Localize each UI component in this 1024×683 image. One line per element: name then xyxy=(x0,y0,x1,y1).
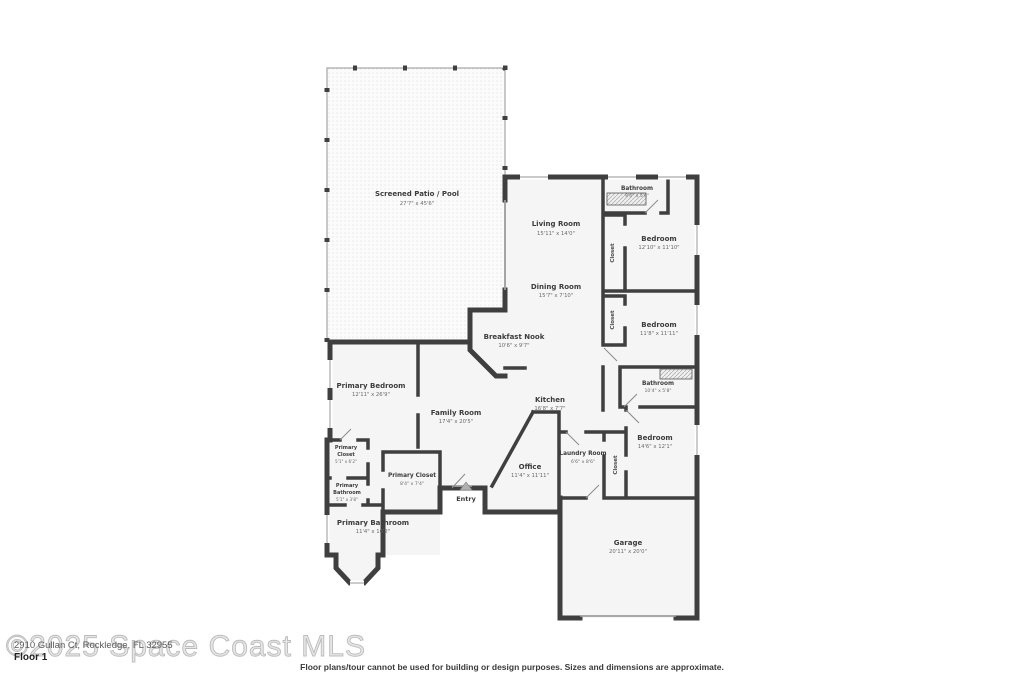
room-label-office: Office xyxy=(519,463,542,471)
room-dims-living-room: 15'11" x 14'0" xyxy=(537,231,575,237)
room-dims-laundry-room: 6'6" x 8'6" xyxy=(571,459,595,465)
room-dims-bedroom-3: 14'6" x 12'1" xyxy=(638,444,673,450)
room-dims-garage: 20'11" x 20'0" xyxy=(609,549,647,555)
closet-label-2: Closet xyxy=(610,310,616,330)
room-label-bedroom-2: Bedroom xyxy=(641,321,676,329)
room-label-primary-bathroom-small-2: Bathroom xyxy=(333,490,361,496)
room-label-dining-room: Dining Room xyxy=(531,283,581,291)
room-dims-bedroom-1: 12'10" x 11'10" xyxy=(638,245,679,251)
room-label-bedroom-1: Bedroom xyxy=(641,235,676,243)
room-dims-bedroom-2: 11'8" x 11'11" xyxy=(640,331,678,337)
room-dims-bathroom-1: 9'4" x 5'6" xyxy=(625,193,649,199)
room-label-bathroom-2: Bathroom xyxy=(642,381,674,387)
room-label-bedroom-3: Bedroom xyxy=(637,434,672,442)
entry-label: Entry xyxy=(456,495,476,503)
room-dims-primary-closet: 8'4" x 7'4" xyxy=(400,481,424,487)
room-label-screened-patio: Screened Patio / Pool xyxy=(375,190,459,198)
room-label-laundry-room: Laundry Room xyxy=(559,451,606,457)
room-dims-primary-closet-small: 5'1" x 6'2" xyxy=(335,459,357,464)
room-dims-breakfast-nook: 10'6" x 9'7" xyxy=(498,343,529,349)
room-label-kitchen: Kitchen xyxy=(535,396,565,404)
room-label-family-room: Family Room xyxy=(431,409,482,417)
room-dims-kitchen: 16'8" x 7'7" xyxy=(534,406,565,412)
closet-label-3: Closet xyxy=(613,455,619,475)
floor-plan-page: Screened Patio / Pool 27'7" x 45'6" Livi… xyxy=(0,0,1024,683)
room-dims-primary-bathroom-small: 5'1" x 3'8" xyxy=(336,497,358,502)
room-dims-office: 11'4" x 11'11" xyxy=(511,473,549,479)
room-label-primary-closet: Primary Closet xyxy=(388,473,436,479)
room-label-primary-bathroom: Primary Bathroom xyxy=(337,519,409,527)
room-label-primary-closet-small-2: Closet xyxy=(337,452,355,458)
room-dims-bathroom-2: 10'4" x 5'8" xyxy=(644,388,671,394)
room-dims-screened-patio: 27'7" x 45'6" xyxy=(400,201,435,207)
room-label-living-room: Living Room xyxy=(532,220,581,228)
room-label-garage: Garage xyxy=(614,539,643,547)
vanity-bathroom-2 xyxy=(660,369,692,379)
room-label-breakfast-nook: Breakfast Nook xyxy=(484,333,545,341)
room-label-bathroom-1: Bathroom xyxy=(621,186,653,192)
room-dims-primary-bedroom: 12'11" x 26'9" xyxy=(352,392,390,398)
closet-label-1: Closet xyxy=(610,243,616,263)
room-dims-family-room: 17'4" x 20'5" xyxy=(439,419,474,425)
property-address: 2910 Gullan Ct, Rockledge, FL 32955 xyxy=(14,640,173,651)
room-label-primary-bathroom-small-1: Primary xyxy=(336,483,359,489)
floor-plan-canvas: Screened Patio / Pool 27'7" x 45'6" Livi… xyxy=(0,0,1024,683)
disclaimer-text: Floor plans/tour cannot be used for buil… xyxy=(0,662,1024,672)
room-label-primary-closet-small-1: Primary xyxy=(335,445,358,451)
room-dims-dining-room: 15'7" x 7'10" xyxy=(539,293,574,299)
room-dims-primary-bathroom: 11'4" x 16'2" xyxy=(356,529,391,535)
room-label-primary-bedroom: Primary Bedroom xyxy=(337,382,406,390)
